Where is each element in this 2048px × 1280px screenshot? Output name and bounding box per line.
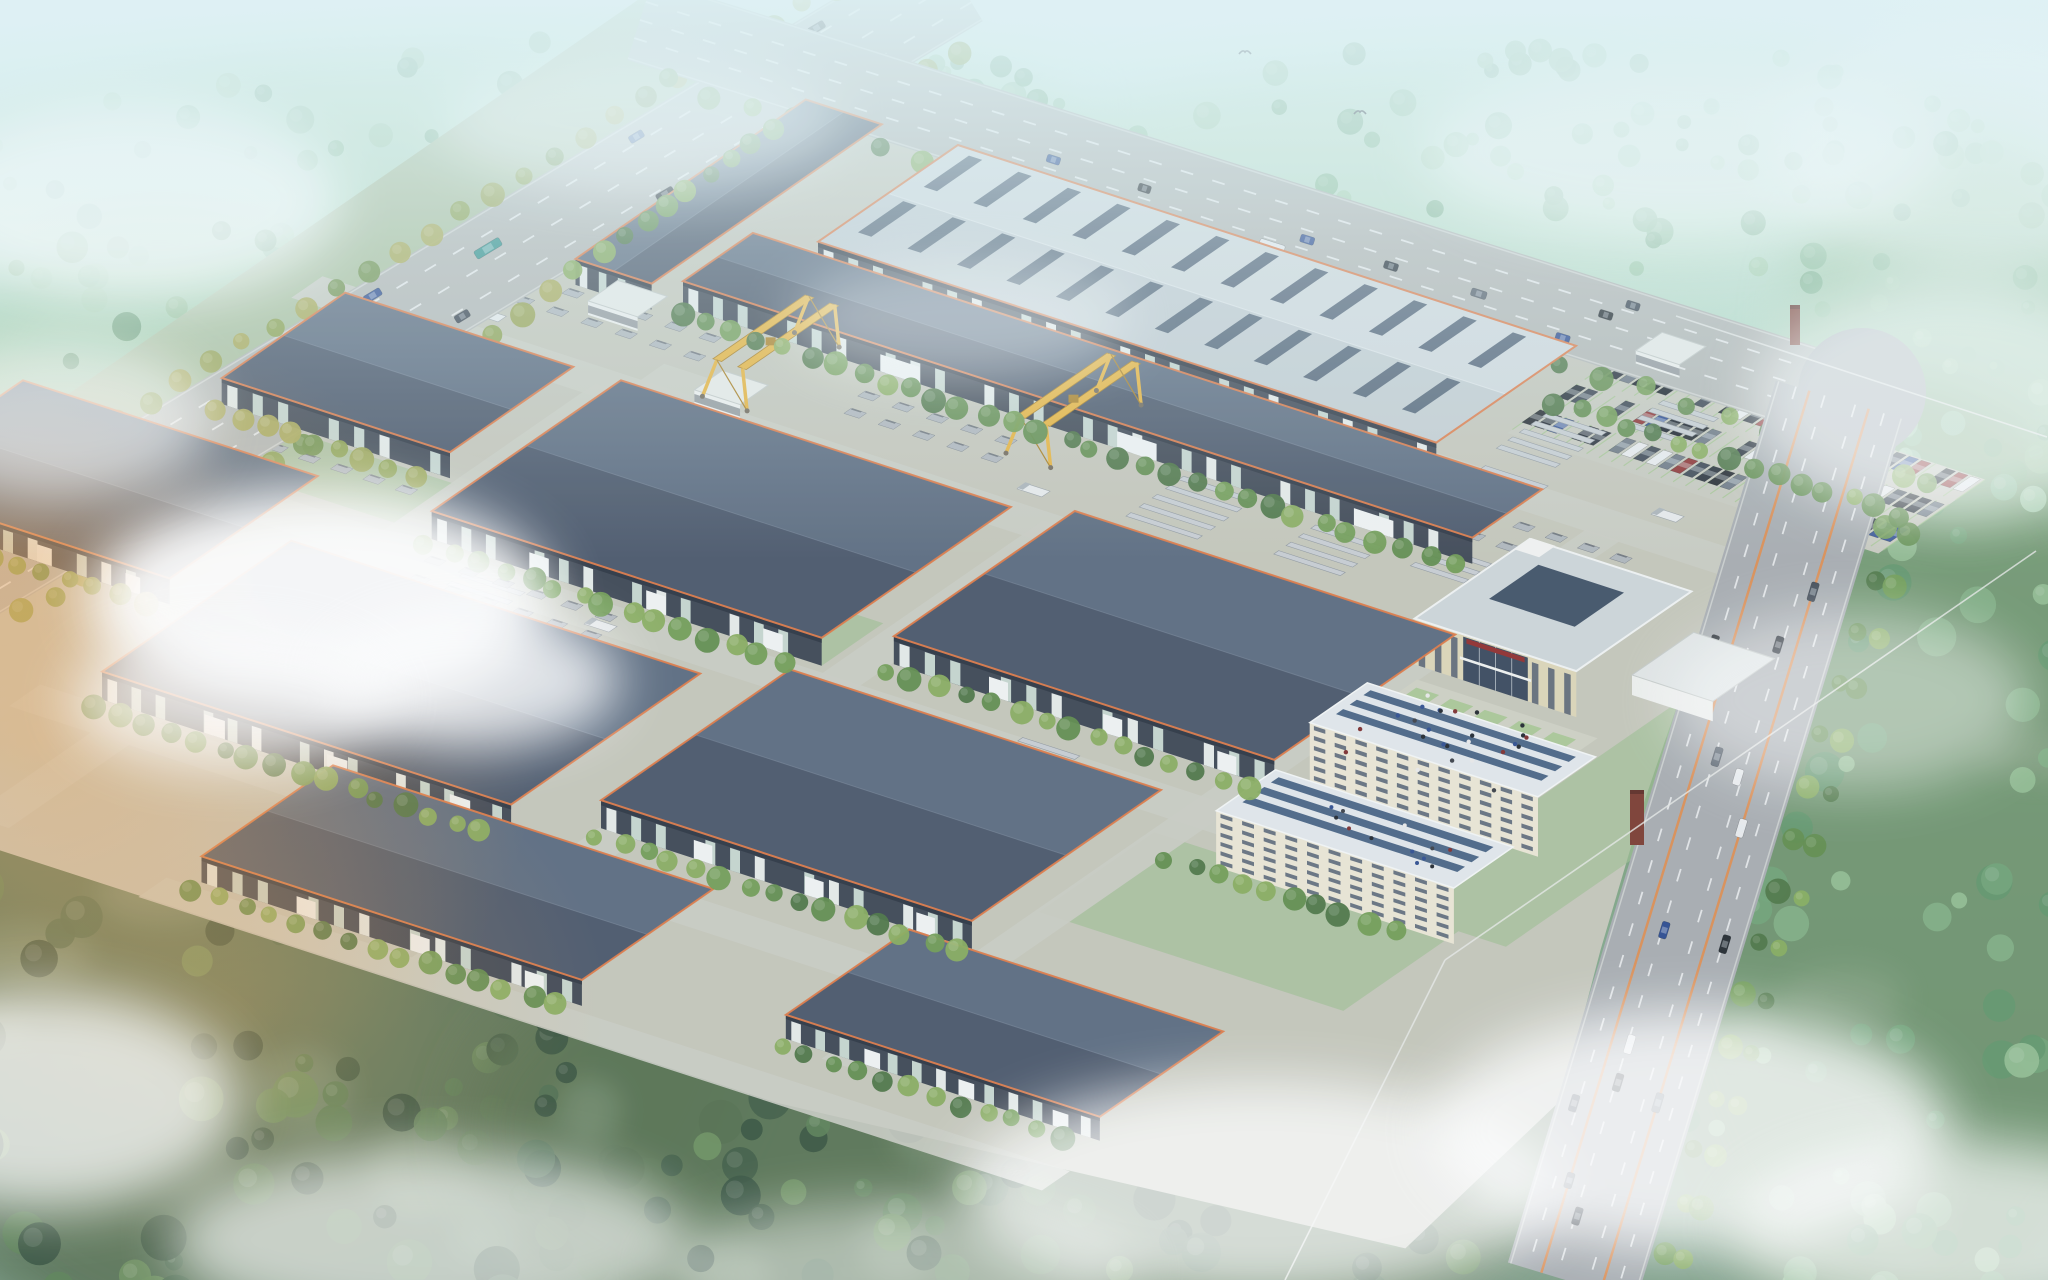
aerial-rendering-stage <box>0 0 2048 1280</box>
industrial-park-scene <box>0 0 2048 1280</box>
atmospheric-haze <box>0 0 2048 1280</box>
